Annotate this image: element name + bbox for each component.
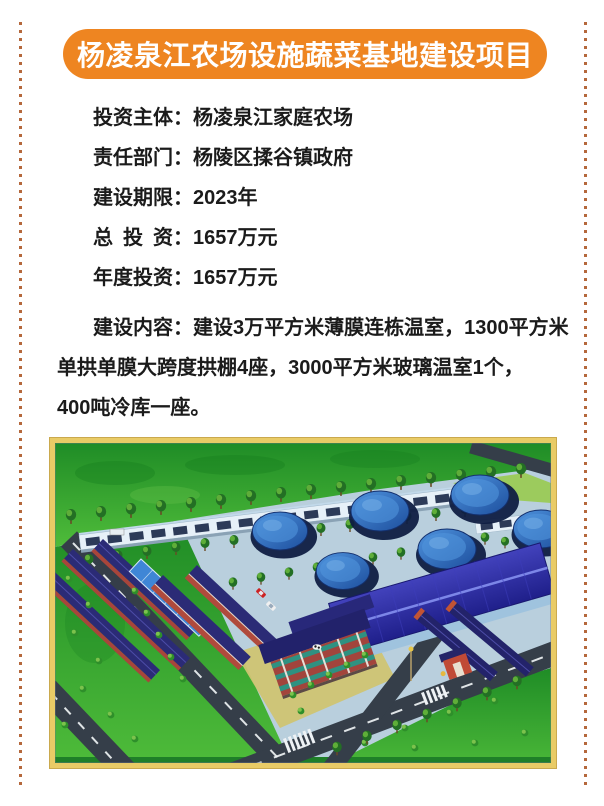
info-row-investor: 投资主体：杨凌泉江家庭农场 [57,108,557,128]
info-value: 杨陵区揉谷镇政府 [193,147,353,169]
info-value: 1657万元 [193,267,278,289]
photo-frame [50,438,556,768]
content-line: 400吨冷库一座。 [57,388,557,428]
content-line: 单拱单膜大跨度拱棚4座，3000平方米玻璃温室1个， [57,348,557,388]
farm-aerial-illustration [55,443,551,763]
info-row-annual-investment: 年度投资：1657万元 [57,268,557,288]
info-label: 建设期限： [93,187,193,209]
left-dotted-border [19,22,22,786]
info-row-period: 建设期限：2023年 [57,188,557,208]
construction-content: 建设内容：建设3万平方米薄膜连栋温室，1300平方米 单拱单膜大跨度拱棚4座，3… [57,308,557,428]
poster-page: 杨凌泉江农场设施蔬菜基地建设项目 投资主体：杨凌泉江家庭农场 责任部门：杨陵区揉… [0,0,604,806]
info-label: 总 投 资： [93,227,193,249]
cow [313,644,322,650]
info-section: 投资主体：杨凌泉江家庭农场 责任部门：杨陵区揉谷镇政府 建设期限：2023年 总… [57,108,557,428]
road-sign [110,529,124,535]
info-value: 2023年 [193,187,258,209]
info-row-department: 责任部门：杨陵区揉谷镇政府 [57,148,557,168]
info-label: 年度投资： [93,267,193,289]
info-value: 1657万元 [193,227,278,249]
right-dotted-border [584,22,587,786]
info-value: 杨凌泉江家庭农场 [193,107,353,129]
project-title: 杨凌泉江农场设施蔬菜基地建设项目 [77,34,533,74]
info-row-total-investment: 总 投 资：1657万元 [57,228,557,248]
title-banner: 杨凌泉江农场设施蔬菜基地建设项目 [63,29,547,79]
info-label: 责任部门： [93,147,193,169]
content-line: 建设内容：建设3万平方米薄膜连栋温室，1300平方米 [57,308,557,348]
info-label: 投资主体： [93,107,193,129]
